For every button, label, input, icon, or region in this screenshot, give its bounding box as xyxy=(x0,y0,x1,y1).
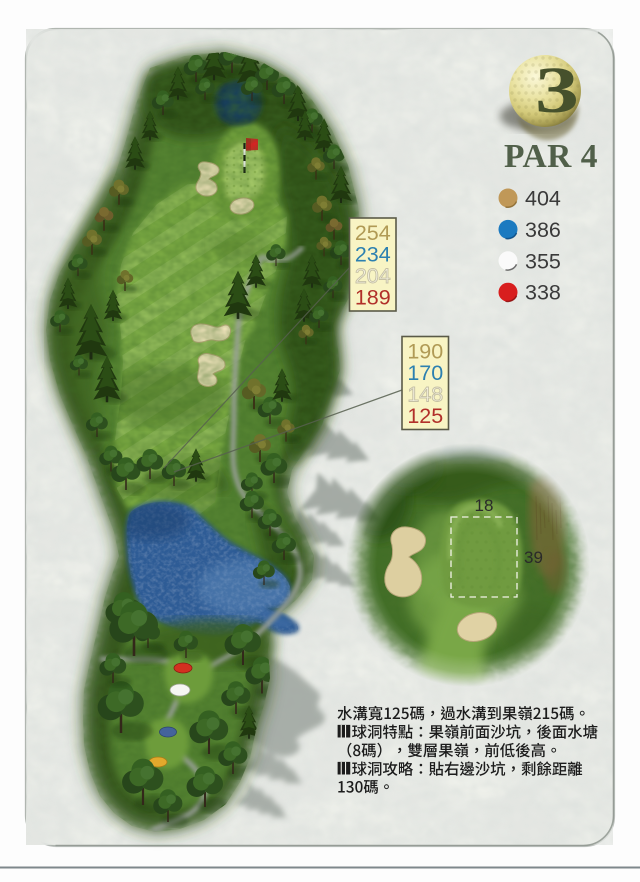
svg-text:355: 355 xyxy=(525,249,561,273)
svg-text:190: 190 xyxy=(407,340,443,364)
svg-text:125: 125 xyxy=(407,404,443,428)
svg-text:204: 204 xyxy=(355,264,391,288)
svg-text:3: 3 xyxy=(535,54,579,127)
svg-text:338: 338 xyxy=(525,281,561,305)
svg-text:PAR 4: PAR 4 xyxy=(504,138,598,175)
svg-text:234: 234 xyxy=(355,243,391,267)
svg-text:189: 189 xyxy=(355,286,391,310)
svg-text:254: 254 xyxy=(355,221,391,245)
svg-text:386: 386 xyxy=(525,218,561,242)
svg-text:148: 148 xyxy=(407,383,443,407)
svg-text:404: 404 xyxy=(525,187,561,211)
svg-text:18: 18 xyxy=(475,496,494,515)
svg-text:170: 170 xyxy=(407,361,443,385)
svg-text:39: 39 xyxy=(524,548,543,567)
